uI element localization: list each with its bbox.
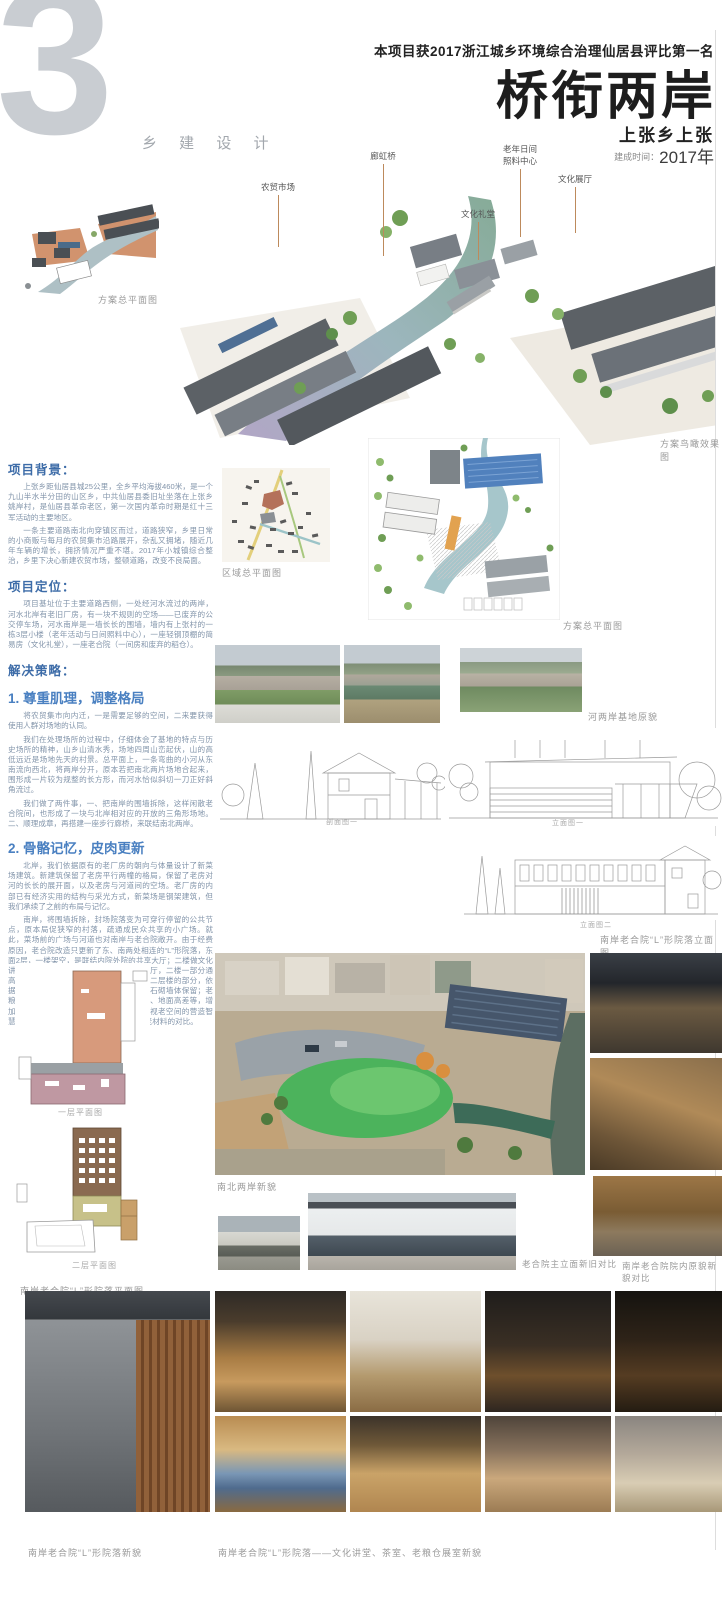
subheading-strategy-2: 2. 骨骼记忆，皮肉更新 [8,837,213,857]
photo-tea-room [350,1416,481,1512]
tree [679,762,715,798]
blue-roof [58,242,80,248]
near-ground [215,1149,445,1175]
caption-site-plan-thumbnail: 方案总平面图 [98,293,158,306]
conifer [306,751,316,819]
paragraph: 我们做了两件事，一、把南岸的围墙拆除，这样闲散老合院间，也形成了一块与北岸相对应… [8,799,213,830]
photo-new-facade [308,1193,516,1270]
dimension-leaders [515,740,640,758]
conifer [247,763,263,819]
stone-base [490,788,612,818]
regional-map [222,468,330,562]
caption-bottom-left: 南岸老合院“L”形院落新貌 [28,1546,142,1559]
paragraph: 将农贸集市向内迁，一是需要足够的空间，二来要获得使用人群对场地的认同。 [8,711,213,731]
leader-line [383,164,384,256]
leader-line [575,187,576,233]
photo-river-bank-2 [344,645,440,723]
leader-line [278,195,279,247]
photo-river-bank-3 [460,648,582,712]
label-text: 老年日间照料中心 [503,144,537,166]
caption-section-1: 剖面图一 [326,817,358,827]
caption-master-plan: 方案总平面图 [563,619,623,632]
tree [703,871,721,889]
photo-interior-timber [590,1058,722,1170]
caption-bottom-right: 南岸老合院“L”形院落——文化讲堂、茶室、老粮仓展室新貌 [218,1546,482,1559]
section-drawing-1 [215,733,445,825]
photo-old-facade [218,1216,300,1270]
conifer [476,856,488,914]
reading-room [121,1200,137,1240]
caption-courtyard-compare: 南岸老合院院内原貌新貌对比 [622,1260,722,1284]
caption-birdseye: 方案鸟瞰效果图 [660,437,722,463]
tree [449,764,473,788]
tree [25,283,31,289]
elevation-drawing-1 [445,728,722,826]
annex [121,983,135,1041]
open-frame [615,784,697,818]
white-building [57,260,92,283]
gabled-house [660,846,710,914]
label-cultural-hall: 文化礼堂 [455,208,501,260]
conifer [495,868,505,914]
caption-floor-2: 二层平面图 [72,1260,117,1271]
photo-river-bank-1 [215,645,340,723]
tree [222,784,244,806]
site-plan-thumbnail [4,204,159,294]
label-text: 文化礼堂 [461,209,495,219]
project-title: 桥衔两岸 [496,54,716,129]
caption-aerial: 南北两岸新貌 [217,1180,277,1193]
blue-roof-building [463,453,543,488]
photo-ceramics-display [215,1416,346,1512]
label-exhibition-hall: 文化展厅 [552,173,598,233]
caption-regional-map: 区域总平面图 [222,566,282,579]
presentation-board: 3 乡 建 设 计 本项目获2017浙江城乡环境综合治理仙居县评比第一名 桥衔两… [0,0,722,1600]
label-text: 农贸市场 [261,182,295,192]
photo-people-dining [485,1416,611,1512]
photo-artifact-shelf [615,1291,722,1412]
floor-plan-1 [15,963,150,1105]
photo-aerial-new [215,953,585,1175]
caption-floor-1: 一层平面图 [58,1107,103,1118]
photo-bright-hall-interior [350,1291,481,1412]
paragraph: 一条主要道路南北向穿镇区而过，道路狭窄，乡里日常的小商贩与每月的农贸集市沿路展开… [8,526,213,567]
void-room [27,1220,95,1252]
photo-model-room [615,1416,722,1512]
chapter-number: 3 [0,0,108,166]
slat-doors [562,888,598,914]
paragraph: 上张乡距仙居县城25公里，全乡平均海拔460米，是一个九山半水半分田的山区乡，中… [8,482,213,523]
label-text: 文化展厅 [558,174,592,184]
label-gallery-bridge: 廊虹桥 [362,150,404,256]
photo-courtyard-new-interior [593,1176,722,1256]
caption-elevation-2: 立面图二 [580,920,612,930]
caption-site-photos: 河两岸基地原貌 [588,710,658,723]
leader-line [478,222,479,260]
master-plan [368,438,560,620]
tree [91,231,97,237]
label-text: 廊虹桥 [370,151,396,161]
gray-blob [260,512,276,524]
upper-windows [520,865,655,881]
label-elder-daycare: 老年日间照料中心 [500,143,540,237]
heading-positioning: 项目定位： [8,576,213,595]
photo-interior-old-barn [590,953,722,1053]
label-farmers-market: 农贸市场 [255,181,301,247]
photo-courtyard-new [25,1291,210,1512]
paragraph: 项目基址位于主要道路西侧，一处经河水流过的两岸，河水北岸有老旧厂房，有一块不规则… [8,599,213,650]
caption-elevation-1: 立面图一 [552,818,584,828]
leader-line [520,169,521,237]
heading-strategy: 解决策略： [8,660,213,679]
elevation-drawing-2 [460,836,722,920]
floor-plan-2 [15,1124,150,1258]
gray-roof-building [430,450,460,484]
photo-dark-exhibit [485,1291,611,1412]
birdseye-render [150,148,715,445]
paragraph: 我们在处理场所的过程中，仔细体会了基地的特点与历史场所的精神，山乡山清水秀，场地… [8,735,213,796]
subheading-strategy-1: 1. 尊重肌理，调整格局 [8,687,213,707]
heading-background: 项目背景： [8,459,213,478]
photo-library-interior [215,1291,346,1412]
corridor [31,1063,123,1074]
text-column: 项目背景： 上张乡距仙居县城25公里，全乡平均海拔460米，是一个九山半水半分田… [8,459,213,1030]
paragraph: 北岸，我们依据原有的老厂房的朝向与体量设计了新菜场建筑。新建筑保留了老房平行两幢… [8,861,213,912]
caption-facade-compare: 老合院主立面新旧对比 [522,1258,617,1270]
